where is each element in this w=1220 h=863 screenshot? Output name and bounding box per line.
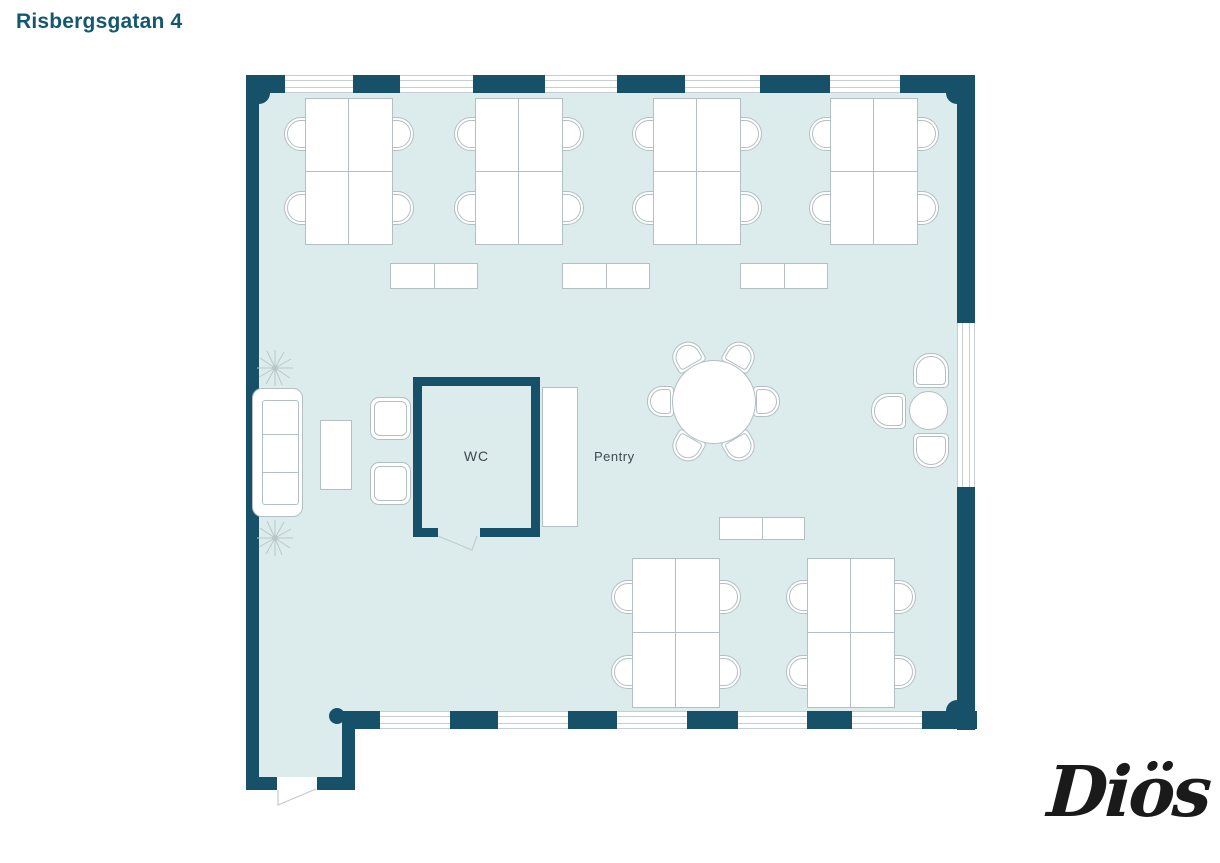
wall-segment bbox=[687, 711, 738, 729]
pillar bbox=[329, 708, 345, 724]
small-round-table bbox=[909, 391, 948, 430]
floorplan-canvas: Risbergsgatan 4 bbox=[0, 0, 1220, 863]
sofa-cushion-divider bbox=[263, 434, 298, 435]
desk bbox=[633, 559, 676, 633]
desk-cluster bbox=[807, 558, 895, 708]
desk-cluster bbox=[653, 98, 741, 245]
desk bbox=[349, 99, 392, 172]
window bbox=[957, 323, 975, 487]
desk bbox=[306, 99, 349, 172]
window bbox=[343, 711, 977, 729]
pentry-counter bbox=[542, 387, 578, 527]
wall-segment bbox=[246, 777, 277, 790]
wall-segment bbox=[617, 75, 685, 93]
wall-segment bbox=[450, 711, 498, 729]
desk bbox=[676, 633, 719, 707]
coffee-table bbox=[320, 420, 352, 490]
chair bbox=[913, 433, 949, 468]
wall-segment bbox=[568, 711, 617, 729]
dios-logo: Diös bbox=[1040, 744, 1215, 844]
wall-segment bbox=[317, 777, 355, 790]
entrance-door-swing bbox=[278, 789, 316, 805]
desk bbox=[476, 172, 519, 245]
desk-cluster bbox=[632, 558, 720, 708]
wall-segment bbox=[760, 75, 830, 93]
desk bbox=[874, 172, 917, 245]
sofa-seat bbox=[262, 400, 299, 505]
desk bbox=[654, 99, 697, 172]
sideboard bbox=[562, 263, 650, 289]
armchair bbox=[370, 397, 411, 440]
wc-door-opening bbox=[438, 527, 480, 537]
sofa-cushion-divider bbox=[263, 472, 298, 473]
desk bbox=[476, 99, 519, 172]
desk-cluster bbox=[475, 98, 563, 245]
desk bbox=[808, 633, 851, 707]
round-table bbox=[672, 360, 756, 444]
desk bbox=[633, 633, 676, 707]
page-title: Risbergsgatan 4 bbox=[16, 10, 182, 34]
chair bbox=[647, 386, 674, 417]
wall-segment bbox=[353, 75, 400, 93]
chair bbox=[871, 393, 906, 429]
sideboard bbox=[719, 517, 805, 540]
desk bbox=[697, 99, 740, 172]
desk bbox=[851, 559, 894, 633]
desk bbox=[676, 559, 719, 633]
desk-cluster bbox=[830, 98, 918, 245]
wc-label: WC bbox=[422, 448, 531, 464]
desk bbox=[851, 633, 894, 707]
entrance-vestibule-floor bbox=[259, 711, 342, 777]
sideboard bbox=[390, 263, 478, 289]
wall-segment bbox=[807, 711, 852, 729]
desk bbox=[306, 172, 349, 245]
desk bbox=[874, 99, 917, 172]
sideboard bbox=[740, 263, 828, 289]
pentry-label: Pentry bbox=[594, 449, 635, 464]
desk bbox=[808, 559, 851, 633]
desk bbox=[519, 99, 562, 172]
desk bbox=[831, 99, 874, 172]
wall-segment bbox=[922, 711, 977, 729]
desk bbox=[831, 172, 874, 245]
sofa bbox=[252, 388, 303, 517]
desk-cluster bbox=[305, 98, 393, 245]
desk bbox=[519, 172, 562, 245]
desk bbox=[654, 172, 697, 245]
chair bbox=[913, 353, 949, 388]
desk bbox=[697, 172, 740, 245]
wall-segment bbox=[473, 75, 545, 93]
armchair bbox=[370, 462, 411, 505]
desk bbox=[349, 172, 392, 245]
